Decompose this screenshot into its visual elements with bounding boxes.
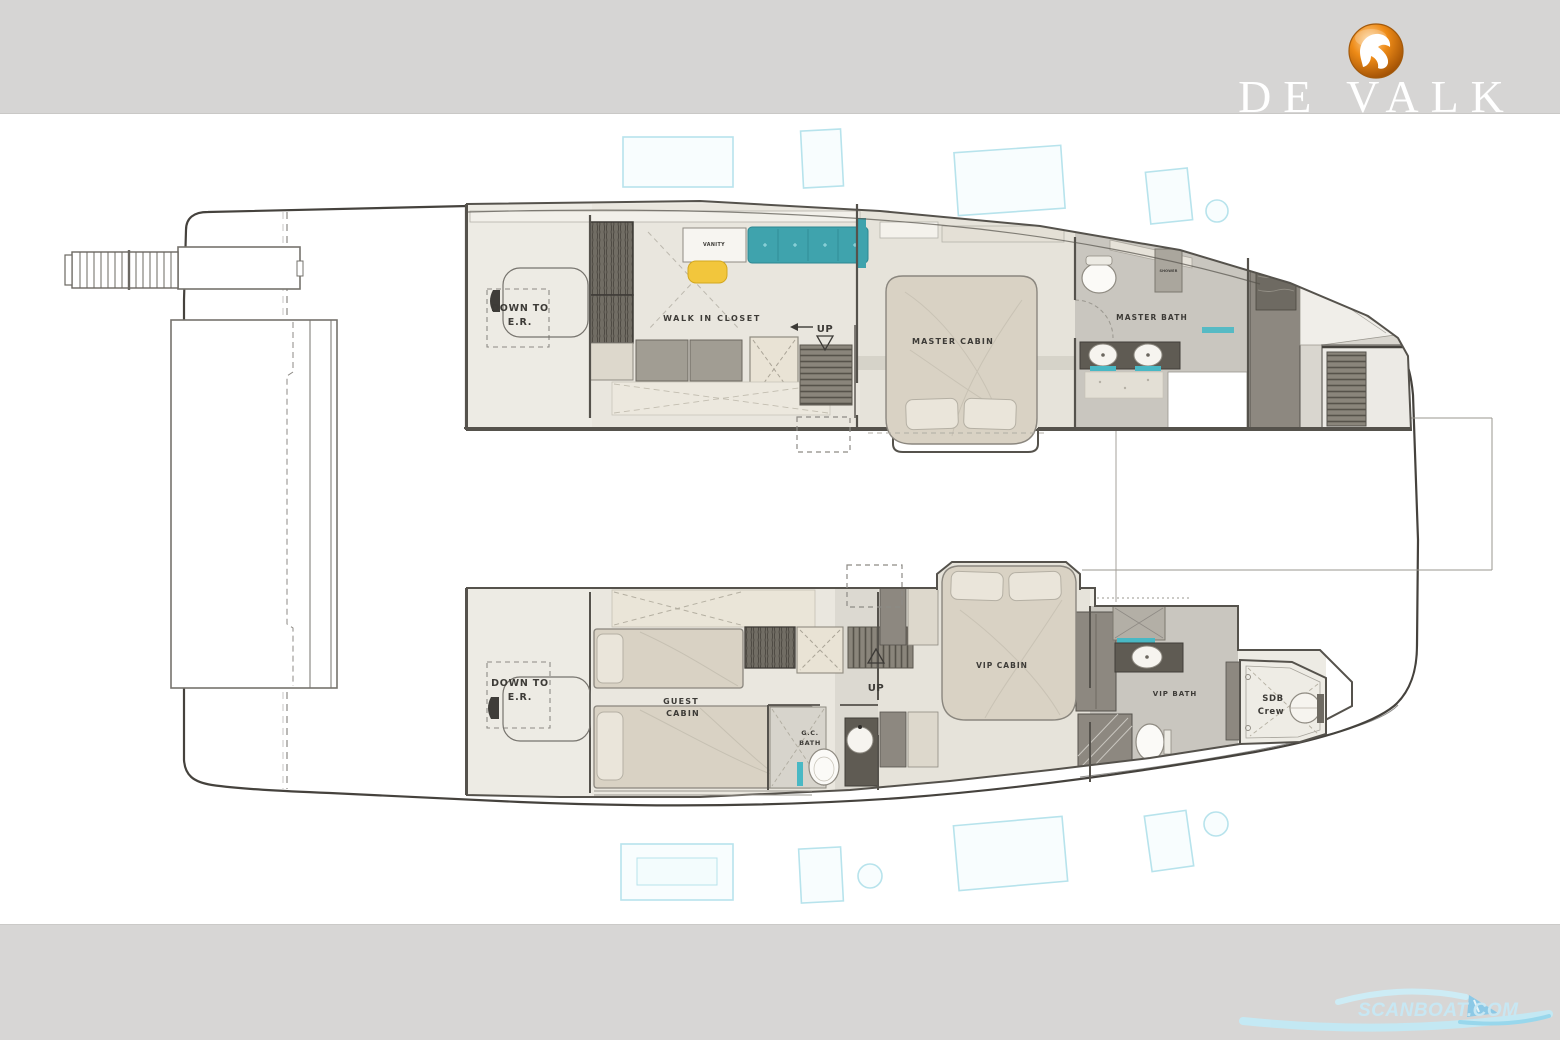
door-hinge-icon: [488, 697, 499, 719]
label-up-stbd: UP: [868, 683, 884, 694]
staircase: [800, 345, 852, 405]
label-er-port: E.R.: [508, 317, 532, 328]
label-guest: GUEST: [663, 697, 699, 706]
bench-seat: [636, 340, 688, 381]
stern-step: [178, 247, 300, 289]
floorplan-canvas: DE VALK SCANBOAT.COM: [0, 0, 1560, 1040]
passerelle-ladder: [65, 250, 178, 290]
label-vip-bath: VIP BATH: [1153, 690, 1197, 698]
vanity-stool: [688, 261, 727, 283]
sink: [847, 727, 873, 753]
label-crew: Crew: [1258, 707, 1284, 717]
swim-platform: [171, 320, 337, 688]
pillow: [905, 398, 958, 430]
label-vip-cabin: VIP CABIN: [976, 661, 1028, 670]
toilet: [1082, 263, 1116, 293]
label-sdb: SDB: [1262, 694, 1283, 704]
label-gc-bath: BATH: [799, 739, 821, 747]
vip-bed: [937, 562, 1080, 720]
label-guest-cabin: CABIN: [666, 709, 700, 718]
port-hull-interior: [464, 201, 1415, 452]
page: DE VALK SCANBOAT.COM: [0, 0, 1560, 1040]
wardrobe: [590, 222, 633, 295]
master-bed: [868, 276, 1048, 444]
footer-band: [0, 924, 1560, 1040]
toilet: [1136, 724, 1164, 760]
hatch-outline: [623, 137, 733, 187]
label-walk-in-closet: WALK IN CLOSET: [663, 314, 761, 323]
label-shower: SHOWER: [1159, 269, 1177, 273]
label-down-to-er-stbd: DOWN TO: [491, 678, 549, 689]
label-vanity: VANITY: [703, 242, 725, 248]
watermark-text: SCANBOAT.COM: [1358, 1000, 1519, 1021]
wardrobe: [745, 627, 795, 668]
brand-wordmark: DE VALK: [1238, 71, 1516, 122]
toilet: [809, 749, 839, 785]
pillow: [951, 571, 1004, 601]
label-up-port: UP: [817, 324, 833, 335]
label-master-bath: MASTER BATH: [1116, 313, 1188, 322]
label-down-to-er-port: DOWN TO: [491, 303, 549, 314]
label-er-stbd: E.R.: [508, 692, 532, 703]
label-gc: G.C.: [801, 729, 818, 737]
label-master-cabin: MASTER CABIN: [912, 337, 994, 346]
